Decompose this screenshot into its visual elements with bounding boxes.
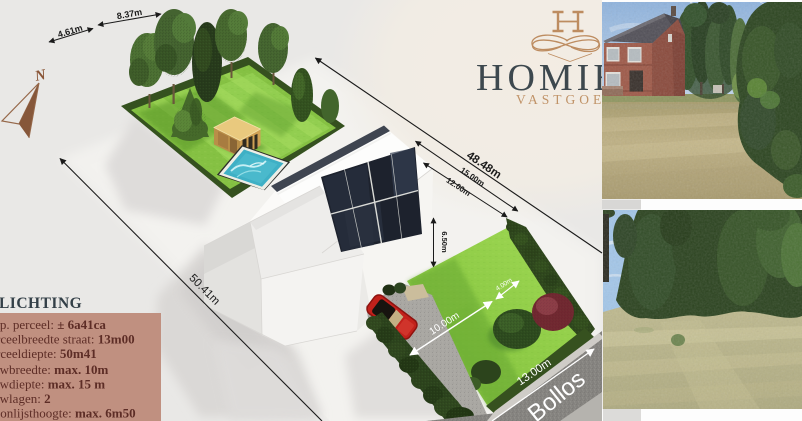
svg-text:TOELICHTING: TOELICHTING [0,295,82,312]
svg-text:Bouwlagen: 2: Bouwlagen: 2 [0,391,51,406]
svg-text:Kroonlijsthoogte: max. 6m50: Kroonlijsthoogte: max. 6m50 [0,406,136,421]
svg-text:Opp. perceel: ± 6a41ca: Opp. perceel: ± 6a41ca [0,317,106,332]
svg-text:Perceeldiepte: 50m41: Perceeldiepte: 50m41 [0,346,97,361]
svg-text:Bouwbreedte: max. 10m: Bouwbreedte: max. 10m [0,362,109,377]
svg-text:Bouwdiepte: max. 15 m: Bouwdiepte: max. 15 m [0,377,105,392]
svg-text:6.50m: 6.50m [440,231,449,253]
svg-text:Perceelbreedte straat: 13m00: Perceelbreedte straat: 13m00 [0,332,135,347]
